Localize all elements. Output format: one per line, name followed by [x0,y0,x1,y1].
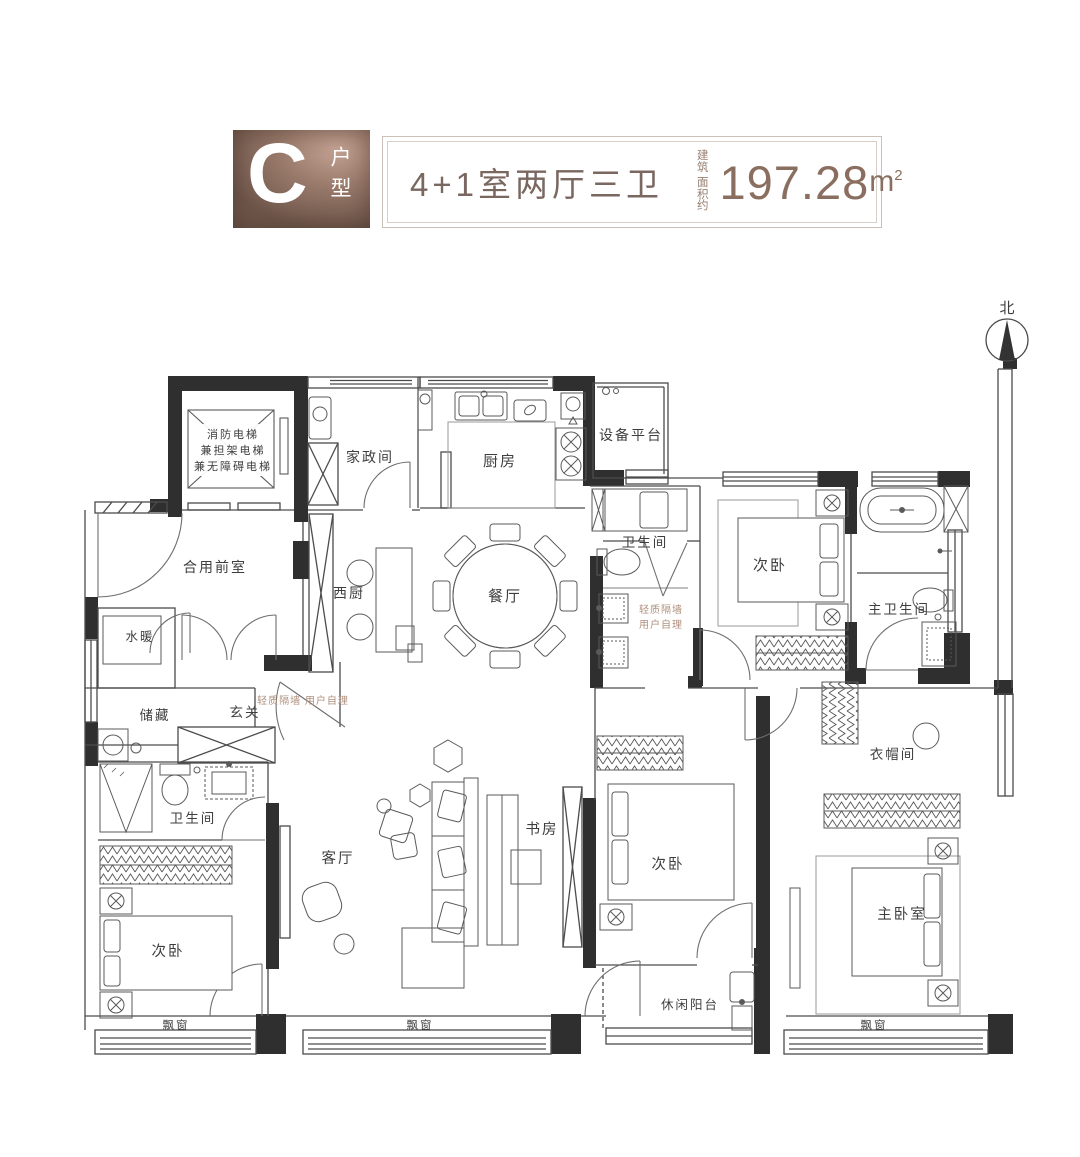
west-kitchen-island [347,548,422,662]
room-label-elevator-1: 消防电梯 [207,427,259,441]
room-label-storage: 储藏 [140,708,171,723]
room-label-master-bath: 主卫生间 [868,602,930,617]
room-label-equipment-platform: 设备平台 [599,427,663,443]
room-label-shared-vestibule: 合用前室 [183,559,247,575]
floorplan-page: C 户型 4+1室两厅三卫 建 筑 面积约 197.28 m2 [0,0,1080,1157]
master-suite-furniture [790,682,960,1014]
compass-north-label: 北 [999,300,1014,317]
room-label-bay-window-middle: 飘窗 [407,1018,434,1032]
room-label-foyer: 玄关 [230,704,261,720]
bedroom-top-right-furniture [718,490,848,670]
room-label-master-bedroom: 主卧室 [877,906,927,923]
room-label-leisure-balcony: 休闲阳台 [661,997,719,1012]
room-label-west-kitchen: 西厨 [333,585,365,601]
room-label-bedroom-bottom-middle: 次卧 [652,856,685,873]
room-label-bedroom-bottom-left: 次卧 [152,943,185,960]
kitchen-fixtures [309,388,619,509]
compass-icon: 北 [986,300,1028,361]
room-label-plumbing: 水暖 [125,630,154,644]
bedroom-bottom-middle-furniture [597,736,734,930]
room-label-elevator-3: 兼无障碍电梯 [194,459,272,473]
room-label-dining: 餐厅 [488,588,522,605]
study-furniture [487,795,541,945]
room-label-bedroom-top-right: 次卧 [753,557,787,574]
balcony-fixtures [730,972,754,1030]
room-label-housekeeping: 家政间 [346,449,394,465]
room-label-cloakroom: 衣帽间 [870,747,917,762]
room-label-bay-window-left: 飘窗 [163,1018,190,1032]
room-label-study: 书房 [526,821,559,838]
floorplan-svg: 北 消防电梯 兼担架电梯 兼无障碍电梯 家政间 厨房 设备平台 合用前室 西厨 … [0,0,1080,1157]
bedroom-bottom-left-furniture [100,846,232,1018]
room-label-living: 客厅 [322,850,355,867]
partition-note-foyer: 轻质隔墙 用户自理 [257,694,349,707]
room-label-bay-window-right: 飘窗 [861,1018,888,1032]
partition-note-mid-1: 轻质隔墙 [639,603,683,616]
room-label-bath-middle: 卫生间 [622,535,669,550]
room-label-elevator-2: 兼担架电梯 [201,443,266,457]
mid-bath-fixtures [592,489,687,668]
room-label-kitchen: 厨房 [483,453,517,470]
partition-note-mid-2: 用户自理 [639,618,683,631]
room-label-bath-left: 卫生间 [170,811,217,826]
